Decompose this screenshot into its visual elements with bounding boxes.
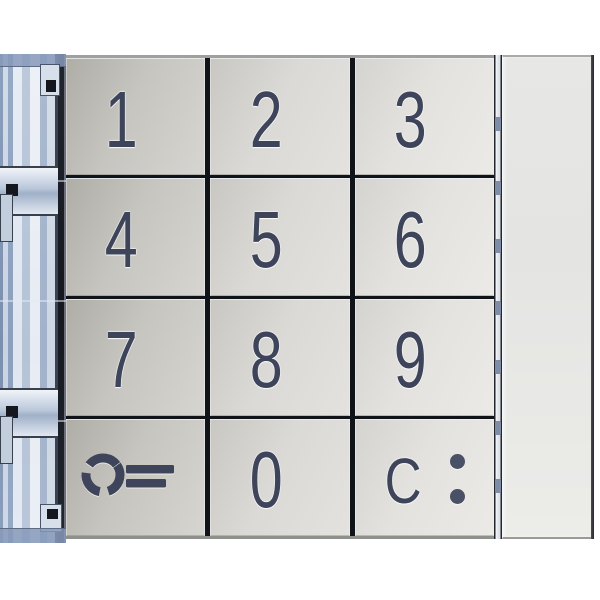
separator-clip [495, 117, 501, 131]
key-0-button[interactable]: 0 [210, 419, 349, 536]
key-8-label: 8 [250, 320, 283, 400]
separator-clip [495, 421, 501, 435]
separator-clip [495, 239, 501, 253]
key-1-label: 1 [105, 80, 138, 160]
key-7-label: 7 [105, 320, 138, 400]
separator-clip [495, 479, 501, 493]
key-5-button[interactable]: 5 [210, 178, 349, 295]
blank-module-panel [502, 55, 591, 539]
key-0-label: 0 [250, 440, 283, 520]
keypad-module-photo: 1 2 3 4 5 6 7 8 9 [0, 0, 600, 600]
rail-tab [0, 194, 13, 242]
key-clear-button[interactable]: C [355, 419, 494, 536]
key-9-label: 9 [394, 320, 427, 400]
mounting-rail [0, 54, 66, 543]
dot-icon [450, 489, 465, 504]
separator-clip [495, 360, 501, 374]
key-unlock-button[interactable] [66, 419, 205, 536]
key-2-label: 2 [250, 80, 283, 160]
clear-symbol: C [380, 447, 465, 511]
rail-tab [0, 416, 13, 464]
key-icon [78, 449, 178, 501]
key-9-button[interactable]: 9 [355, 299, 494, 416]
separator-clip [495, 181, 501, 195]
latch-notch [46, 80, 56, 92]
key-5-label: 5 [250, 200, 283, 280]
key-8-button[interactable]: 8 [210, 299, 349, 416]
rail-band [40, 54, 47, 543]
rail-band [22, 54, 30, 543]
rail-band [13, 54, 22, 543]
key-1-button[interactable]: 1 [66, 58, 205, 175]
key-6-button[interactable]: 6 [355, 178, 494, 295]
key-3-button[interactable]: 3 [355, 58, 494, 175]
rail-band [47, 54, 55, 543]
rail-bottom-cap [0, 528, 66, 543]
key-2-button[interactable]: 2 [210, 58, 349, 175]
colon-dots-icon [450, 454, 465, 504]
clear-c-label: C [384, 449, 421, 513]
key-6-label: 6 [394, 200, 427, 280]
key-3-label: 3 [394, 80, 427, 160]
latch-notch [47, 509, 58, 519]
rail-seam [0, 300, 66, 302]
module-separator-rail [494, 55, 502, 539]
rail-band [30, 54, 40, 543]
key-7-button[interactable]: 7 [66, 299, 205, 416]
rail-top-latch [40, 64, 60, 96]
separator-clip [495, 301, 501, 315]
key-4-label: 4 [105, 200, 138, 280]
keypad: 1 2 3 4 5 6 7 8 9 [66, 55, 494, 539]
dot-icon [450, 454, 465, 469]
panel-right-edge [591, 55, 594, 539]
key-4-button[interactable]: 4 [66, 178, 205, 295]
